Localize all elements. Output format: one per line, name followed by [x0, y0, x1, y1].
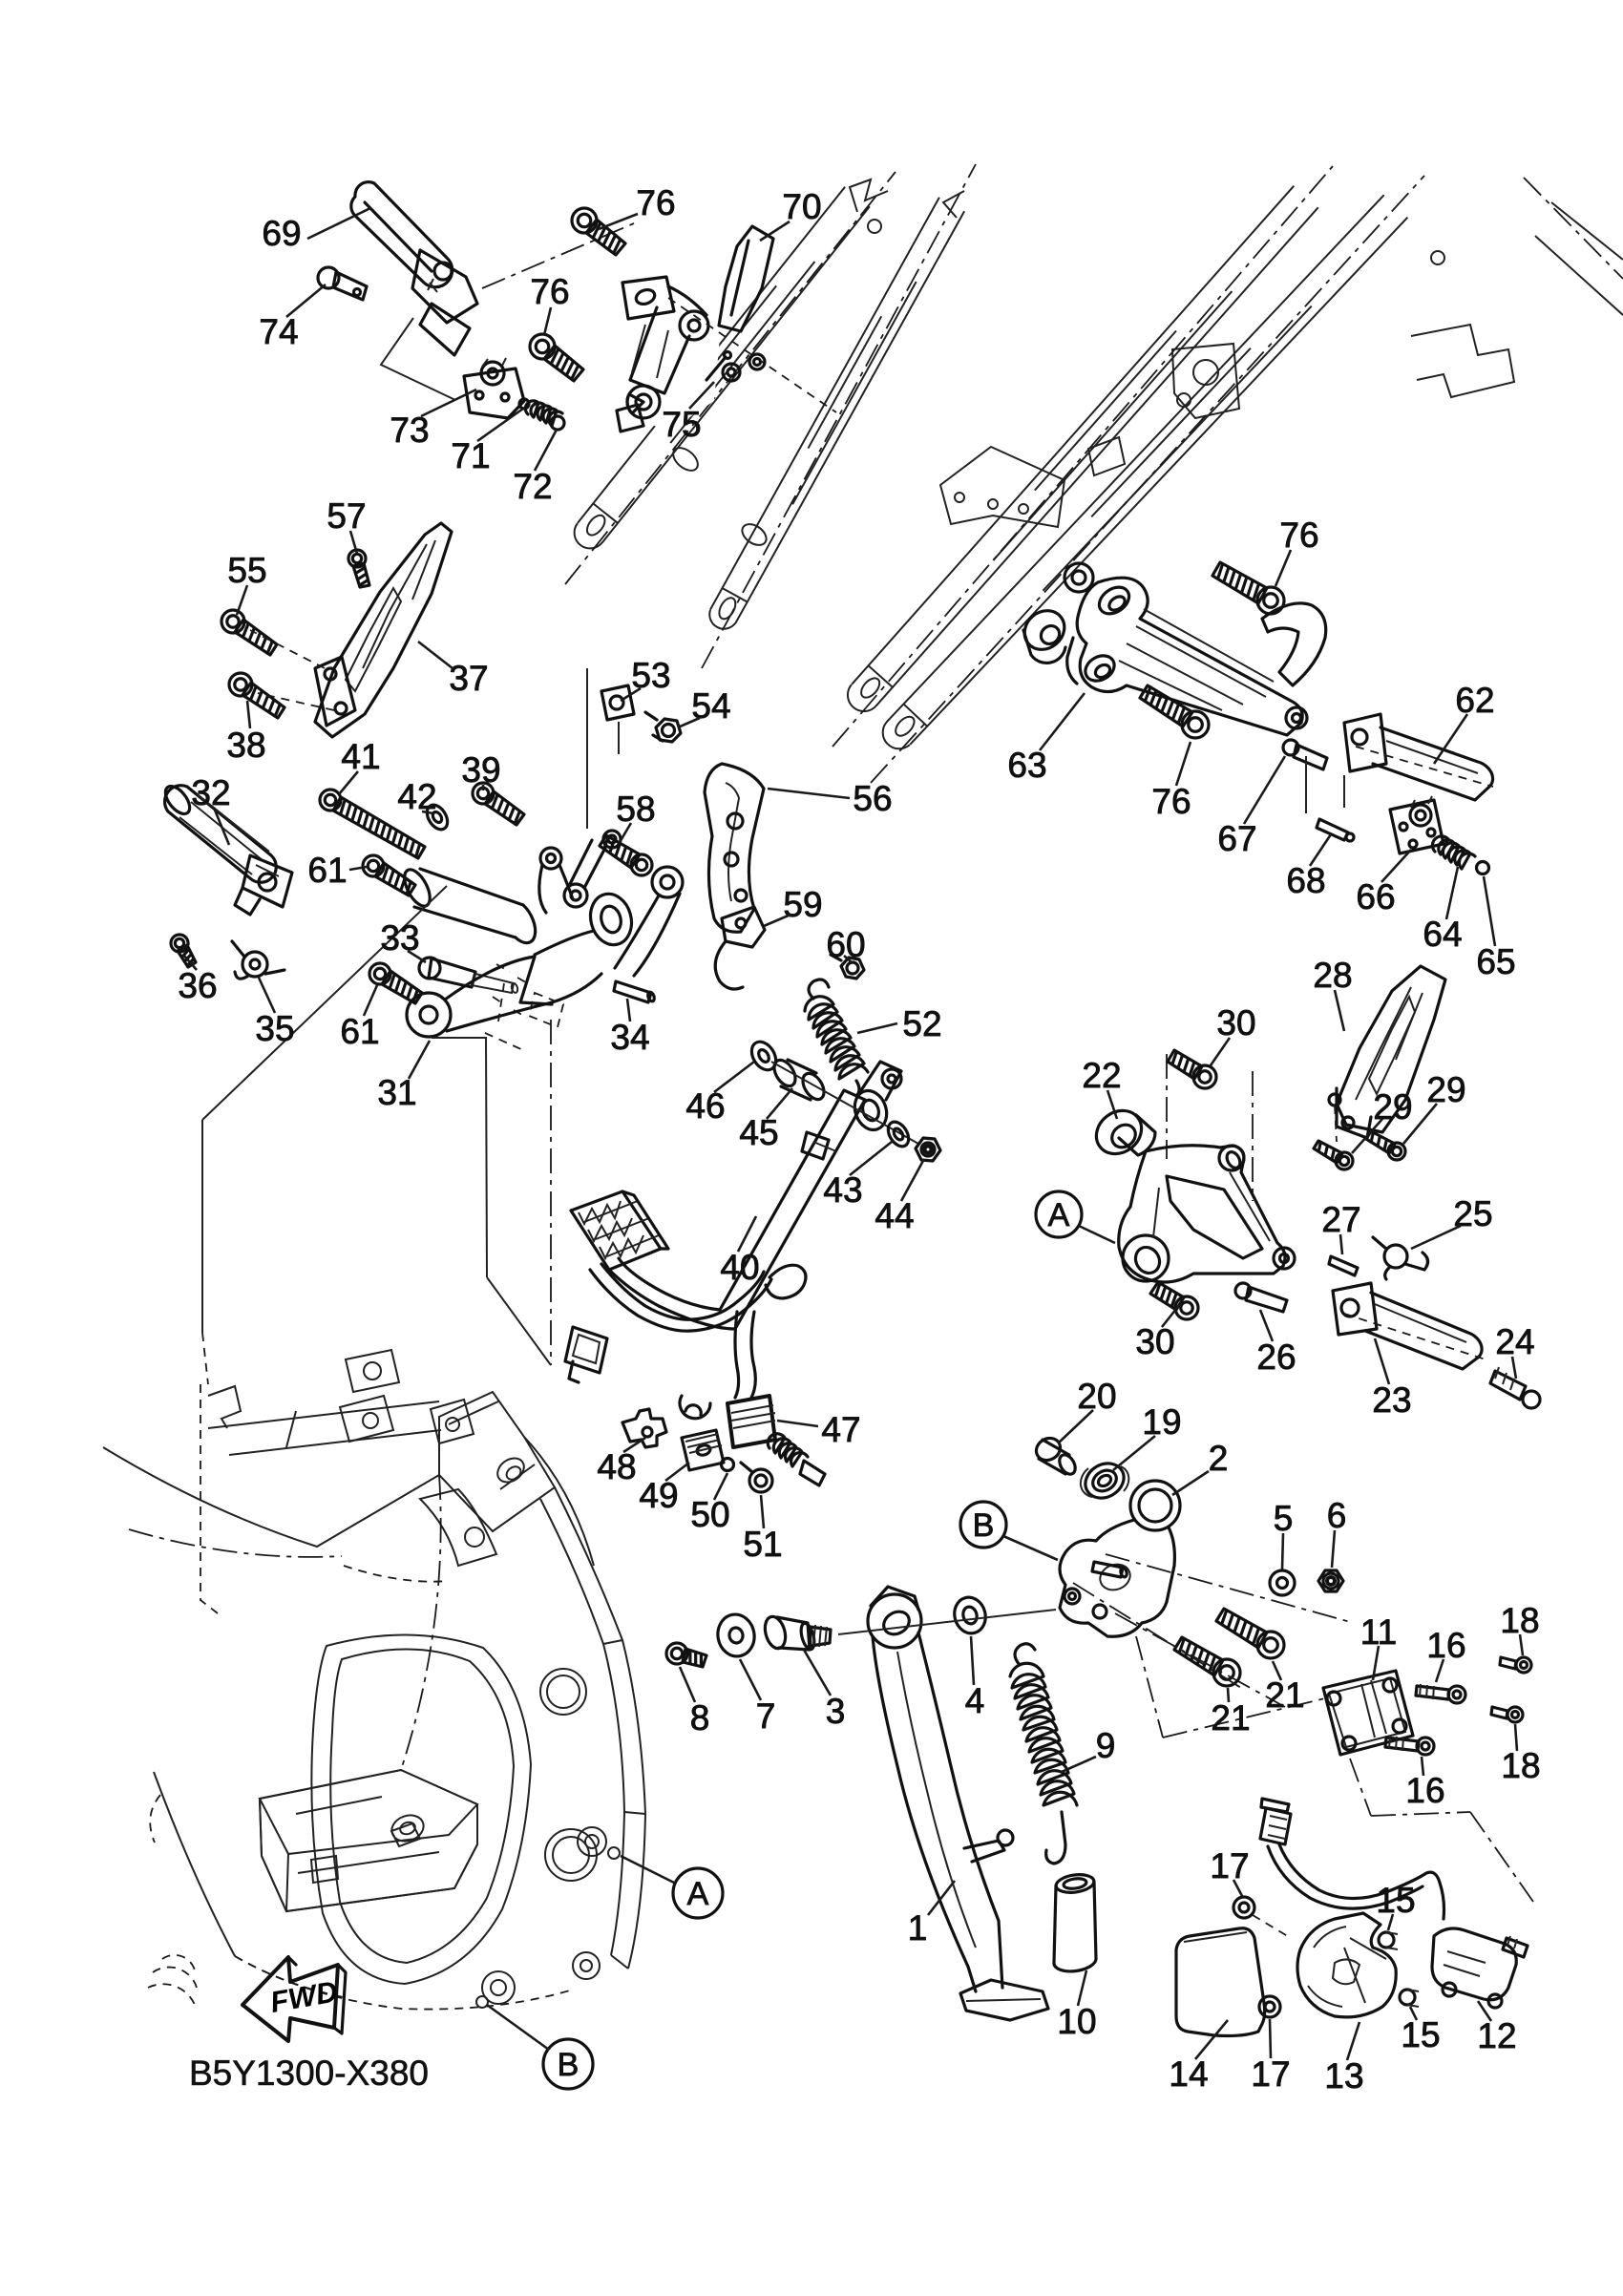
svg-text:31: 31 [377, 1073, 416, 1112]
svg-text:16: 16 [1405, 1771, 1444, 1810]
svg-text:5: 5 [1274, 1499, 1294, 1538]
svg-text:38: 38 [226, 726, 265, 765]
svg-text:58: 58 [616, 790, 655, 829]
svg-text:37: 37 [449, 659, 488, 698]
svg-text:17: 17 [1251, 2054, 1290, 2094]
svg-text:6: 6 [1327, 1496, 1347, 1535]
svg-text:41: 41 [341, 737, 380, 776]
svg-text:30: 30 [1135, 1322, 1174, 1361]
svg-text:14: 14 [1169, 2054, 1208, 2094]
svg-text:13: 13 [1324, 2056, 1363, 2096]
svg-text:26: 26 [1256, 1338, 1296, 1377]
svg-text:21: 21 [1265, 1675, 1304, 1715]
svg-text:33: 33 [380, 918, 419, 958]
svg-text:29: 29 [1426, 1070, 1465, 1109]
svg-text:30: 30 [1216, 1003, 1255, 1043]
svg-text:66: 66 [1356, 877, 1395, 916]
svg-text:2: 2 [1209, 1439, 1229, 1478]
svg-text:7: 7 [756, 1696, 776, 1736]
svg-text:27: 27 [1321, 1200, 1360, 1239]
svg-text:8: 8 [690, 1698, 710, 1738]
svg-text:22: 22 [1082, 1056, 1121, 1095]
svg-text:35: 35 [255, 1009, 294, 1048]
svg-text:36: 36 [178, 966, 217, 1005]
svg-text:47: 47 [821, 1410, 860, 1449]
svg-text:76: 76 [1151, 782, 1191, 821]
svg-text:63: 63 [1007, 746, 1046, 785]
svg-text:24: 24 [1495, 1322, 1534, 1361]
svg-text:B: B [558, 2047, 580, 2083]
svg-text:55: 55 [227, 551, 266, 590]
svg-text:20: 20 [1077, 1377, 1116, 1416]
svg-text:45: 45 [739, 1113, 778, 1152]
svg-text:4: 4 [965, 1681, 985, 1720]
svg-text:12: 12 [1477, 2016, 1516, 2055]
svg-text:3: 3 [826, 1692, 846, 1731]
svg-text:19: 19 [1142, 1402, 1181, 1442]
svg-text:76: 76 [1279, 516, 1318, 555]
svg-text:11: 11 [1360, 1612, 1397, 1652]
svg-text:51: 51 [743, 1525, 782, 1564]
svg-text:B5Y1300-X380: B5Y1300-X380 [189, 2054, 429, 2093]
svg-text:43: 43 [823, 1170, 862, 1210]
svg-text:18: 18 [1501, 1746, 1540, 1785]
svg-text:61: 61 [340, 1012, 379, 1051]
svg-text:67: 67 [1217, 819, 1256, 858]
svg-text:18: 18 [1500, 1601, 1539, 1640]
svg-text:62: 62 [1455, 681, 1494, 720]
svg-text:34: 34 [610, 1018, 649, 1057]
svg-text:9: 9 [1096, 1726, 1116, 1765]
svg-text:76: 76 [636, 183, 675, 222]
svg-text:70: 70 [782, 187, 821, 226]
svg-text:21: 21 [1211, 1698, 1250, 1738]
svg-text:57: 57 [327, 496, 366, 536]
svg-text:56: 56 [853, 779, 892, 818]
svg-text:42: 42 [397, 777, 436, 816]
svg-text:28: 28 [1313, 956, 1352, 995]
svg-text:61: 61 [307, 851, 347, 890]
svg-text:50: 50 [690, 1495, 729, 1534]
svg-text:46: 46 [685, 1086, 725, 1126]
svg-text:40: 40 [720, 1248, 759, 1287]
svg-text:68: 68 [1286, 861, 1325, 900]
svg-text:71: 71 [451, 436, 490, 475]
svg-text:44: 44 [875, 1196, 914, 1235]
svg-text:A: A [687, 1876, 709, 1912]
svg-text:72: 72 [513, 467, 552, 506]
svg-text:65: 65 [1476, 942, 1515, 981]
svg-text:29: 29 [1373, 1087, 1412, 1127]
svg-text:15: 15 [1401, 2015, 1440, 2054]
svg-text:69: 69 [262, 214, 301, 253]
svg-text:75: 75 [662, 405, 701, 444]
svg-text:A: A [1048, 1197, 1070, 1233]
svg-text:16: 16 [1426, 1626, 1465, 1665]
svg-text:39: 39 [461, 750, 500, 790]
svg-text:64: 64 [1423, 915, 1462, 954]
svg-text:59: 59 [783, 885, 822, 924]
svg-text:15: 15 [1376, 1881, 1415, 1920]
svg-text:1: 1 [908, 1908, 928, 1948]
svg-text:B: B [973, 1507, 995, 1544]
svg-text:48: 48 [597, 1447, 636, 1486]
svg-text:76: 76 [530, 272, 569, 311]
svg-text:17: 17 [1210, 1846, 1249, 1885]
svg-text:74: 74 [259, 312, 298, 351]
svg-text:32: 32 [191, 773, 230, 812]
svg-text:10: 10 [1057, 2002, 1096, 2041]
svg-text:49: 49 [639, 1476, 678, 1515]
svg-text:52: 52 [902, 1004, 941, 1043]
svg-text:23: 23 [1372, 1380, 1411, 1420]
